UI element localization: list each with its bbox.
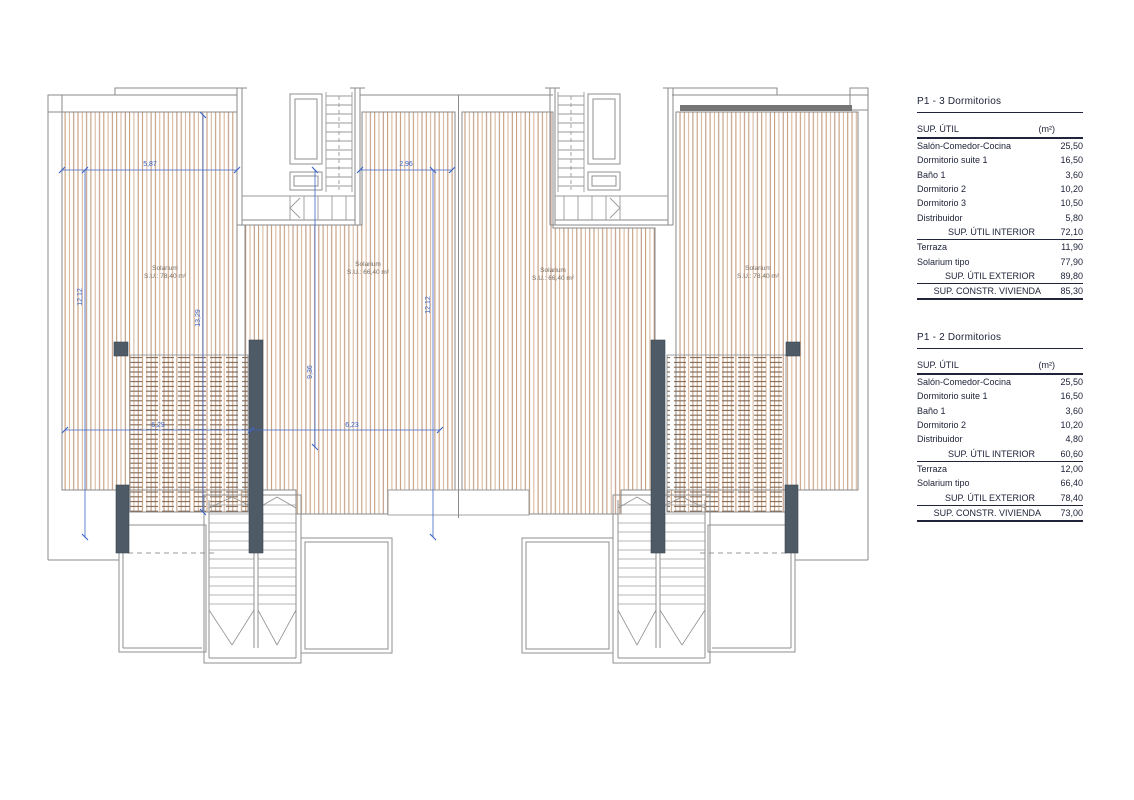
constructed-total-row: SUP. CONSTR. VIVIENDA73,00 xyxy=(917,506,1083,522)
unit3-label: Solarium xyxy=(540,267,566,274)
cell-label: SUP. CONSTR. VIVIENDA xyxy=(917,286,1041,296)
cell-label: Terraza xyxy=(917,242,1043,252)
surface-table-3-bedrooms: P1 - 3 Dormitorios SUP. ÚTIL (m²) Salón-… xyxy=(917,96,1083,300)
cell-value: 16,50 xyxy=(1043,391,1083,401)
cell-value: 60,60 xyxy=(1043,449,1083,459)
table-header: SUP. ÚTIL (m²) xyxy=(917,124,1083,139)
dim-left-vertical: 12,12 xyxy=(77,288,84,306)
table-row: Salón-Comedor-Cocina25,50 xyxy=(917,139,1083,153)
drawing-sheet: 5,87 2,96 12,12 13,29 9,36 12,12 6,29 6,… xyxy=(0,0,1134,800)
cell-label: Baño 1 xyxy=(917,170,1043,180)
surface-table-2-bedrooms: P1 - 2 Dormitorios SUP. ÚTIL (m²) Salón-… xyxy=(917,332,1083,522)
table-row: Dormitorio 310,50 xyxy=(917,196,1083,210)
exterior-total-row: SUP. ÚTIL EXTERIOR89,80 xyxy=(917,269,1083,284)
unit2-area: S.U.: 66,40 m² xyxy=(347,269,390,276)
cell-label: Salón-Comedor-Cocina xyxy=(917,141,1043,151)
table-row: Dormitorio 210,20 xyxy=(917,418,1083,432)
party-wall xyxy=(651,340,665,553)
dim-center-vertical: 9,36 xyxy=(307,365,314,379)
cell-value: 10,20 xyxy=(1043,184,1083,194)
constructed-total-row: SUP. CONSTR. VIVIENDA85,30 xyxy=(917,284,1083,300)
cell-label: Solarium tipo xyxy=(917,257,1043,267)
dim-top-left: 5,87 xyxy=(143,161,157,168)
unit1-area: S.U.: 78,40 m² xyxy=(144,273,187,280)
table-row: Distribuidor5,80 xyxy=(917,210,1083,224)
cell-label: Terraza xyxy=(917,464,1043,474)
cell-value: 4,80 xyxy=(1043,434,1083,444)
unit4-pergola xyxy=(667,355,786,512)
parapet-notch xyxy=(48,95,62,112)
table-row: Terraza12,00 xyxy=(917,462,1083,476)
cell-label: Solarium tipo xyxy=(917,478,1043,488)
table-row: Baño 13,60 xyxy=(917,404,1083,418)
cell-value: 11,90 xyxy=(1043,242,1083,252)
cell-label: Dormitorio suite 1 xyxy=(917,391,1043,401)
table-row: Distribuidor4,80 xyxy=(917,432,1083,446)
table-title: P1 - 2 Dormitorios xyxy=(917,332,1083,349)
table-row: Solarium tipo77,90 xyxy=(917,254,1083,268)
chimney xyxy=(786,342,800,356)
cell-value: 78,40 xyxy=(1043,493,1083,503)
cell-label: Salón-Comedor-Cocina xyxy=(917,377,1043,387)
party-wall xyxy=(249,340,263,553)
cell-label: Dormitorio suite 1 xyxy=(917,155,1043,165)
cell-label: SUP. ÚTIL INTERIOR xyxy=(917,227,1035,237)
unit1-pergola xyxy=(130,355,248,512)
table-row: Dormitorio suite 116,50 xyxy=(917,153,1083,167)
roof-edge-band xyxy=(680,105,852,111)
table-header: SUP. ÚTIL (m²) xyxy=(917,360,1083,375)
cell-value: 3,60 xyxy=(1043,406,1083,416)
cell-value: 10,20 xyxy=(1043,420,1083,430)
cell-value: 12,00 xyxy=(1043,464,1083,474)
cell-label: Dormitorio 2 xyxy=(917,420,1043,430)
cell-value: 73,00 xyxy=(1043,508,1083,518)
cell-value: 85,30 xyxy=(1043,286,1083,296)
unit3-solarium xyxy=(462,112,655,514)
cell-value: 72,10 xyxy=(1043,227,1083,237)
wall-pier xyxy=(116,485,129,553)
chimney xyxy=(114,342,128,356)
table-row: Dormitorio 210,20 xyxy=(917,182,1083,196)
table-row: Salón-Comedor-Cocina25,50 xyxy=(917,375,1083,389)
cell-value: 3,60 xyxy=(1043,170,1083,180)
unit3-area: S.U.: 66,40 m² xyxy=(532,275,575,282)
cell-label: Dormitorio 2 xyxy=(917,184,1043,194)
cell-label: SUP. ÚTIL EXTERIOR xyxy=(917,493,1035,503)
cell-value: 16,50 xyxy=(1043,155,1083,165)
cell-value: 5,80 xyxy=(1043,213,1083,223)
dim-bottom-left: 6,29 xyxy=(151,422,165,429)
cell-label: Baño 1 xyxy=(917,406,1043,416)
wall-pier xyxy=(785,485,798,553)
header-label: SUP. ÚTIL xyxy=(917,360,959,370)
cell-label: Distribuidor xyxy=(917,434,1043,444)
header-unit: (m²) xyxy=(1039,124,1056,134)
dim-center-right-vertical: 12,12 xyxy=(425,296,432,314)
unit2-label: Solarium xyxy=(355,261,381,268)
header-unit: (m²) xyxy=(1039,360,1056,370)
cell-value: 77,90 xyxy=(1043,257,1083,267)
table-row: Dormitorio suite 116,50 xyxy=(917,389,1083,403)
cell-label: SUP. ÚTIL INTERIOR xyxy=(917,449,1035,459)
table-row: Baño 13,60 xyxy=(917,168,1083,182)
unit1-label: Solarium xyxy=(152,265,178,272)
table-title: P1 - 3 Dormitorios xyxy=(917,96,1083,113)
unit4-label: Solarium xyxy=(745,265,771,272)
cell-label: Distribuidor xyxy=(917,213,1043,223)
dim-top-middle: 2,96 xyxy=(399,161,413,168)
dim-bottom-center: 6,23 xyxy=(345,422,359,429)
parapet-coping xyxy=(115,88,237,95)
cell-label: SUP. ÚTIL EXTERIOR xyxy=(917,271,1035,281)
dim-center-left-vertical: 13,29 xyxy=(195,309,202,327)
interior-total-row: SUP. ÚTIL INTERIOR60,60 xyxy=(917,446,1083,461)
cell-label: SUP. CONSTR. VIVIENDA xyxy=(917,508,1041,518)
cell-value: 66,40 xyxy=(1043,478,1083,488)
cell-value: 25,50 xyxy=(1043,377,1083,387)
cell-value: 10,50 xyxy=(1043,198,1083,208)
unit2-solarium xyxy=(245,112,455,514)
header-label: SUP. ÚTIL xyxy=(917,124,959,134)
interior-total-row: SUP. ÚTIL INTERIOR72,10 xyxy=(917,225,1083,240)
table-row: Terraza11,90 xyxy=(917,240,1083,254)
parapet-coping xyxy=(673,88,777,95)
table-row: Solarium tipo66,40 xyxy=(917,476,1083,490)
cell-value: 25,50 xyxy=(1043,141,1083,151)
cell-label: Dormitorio 3 xyxy=(917,198,1043,208)
exterior-total-row: SUP. ÚTIL EXTERIOR78,40 xyxy=(917,490,1083,505)
parapet-notch xyxy=(850,88,868,110)
cell-value: 89,80 xyxy=(1043,271,1083,281)
unit4-area: S.U.: 78,40 m² xyxy=(737,273,780,280)
